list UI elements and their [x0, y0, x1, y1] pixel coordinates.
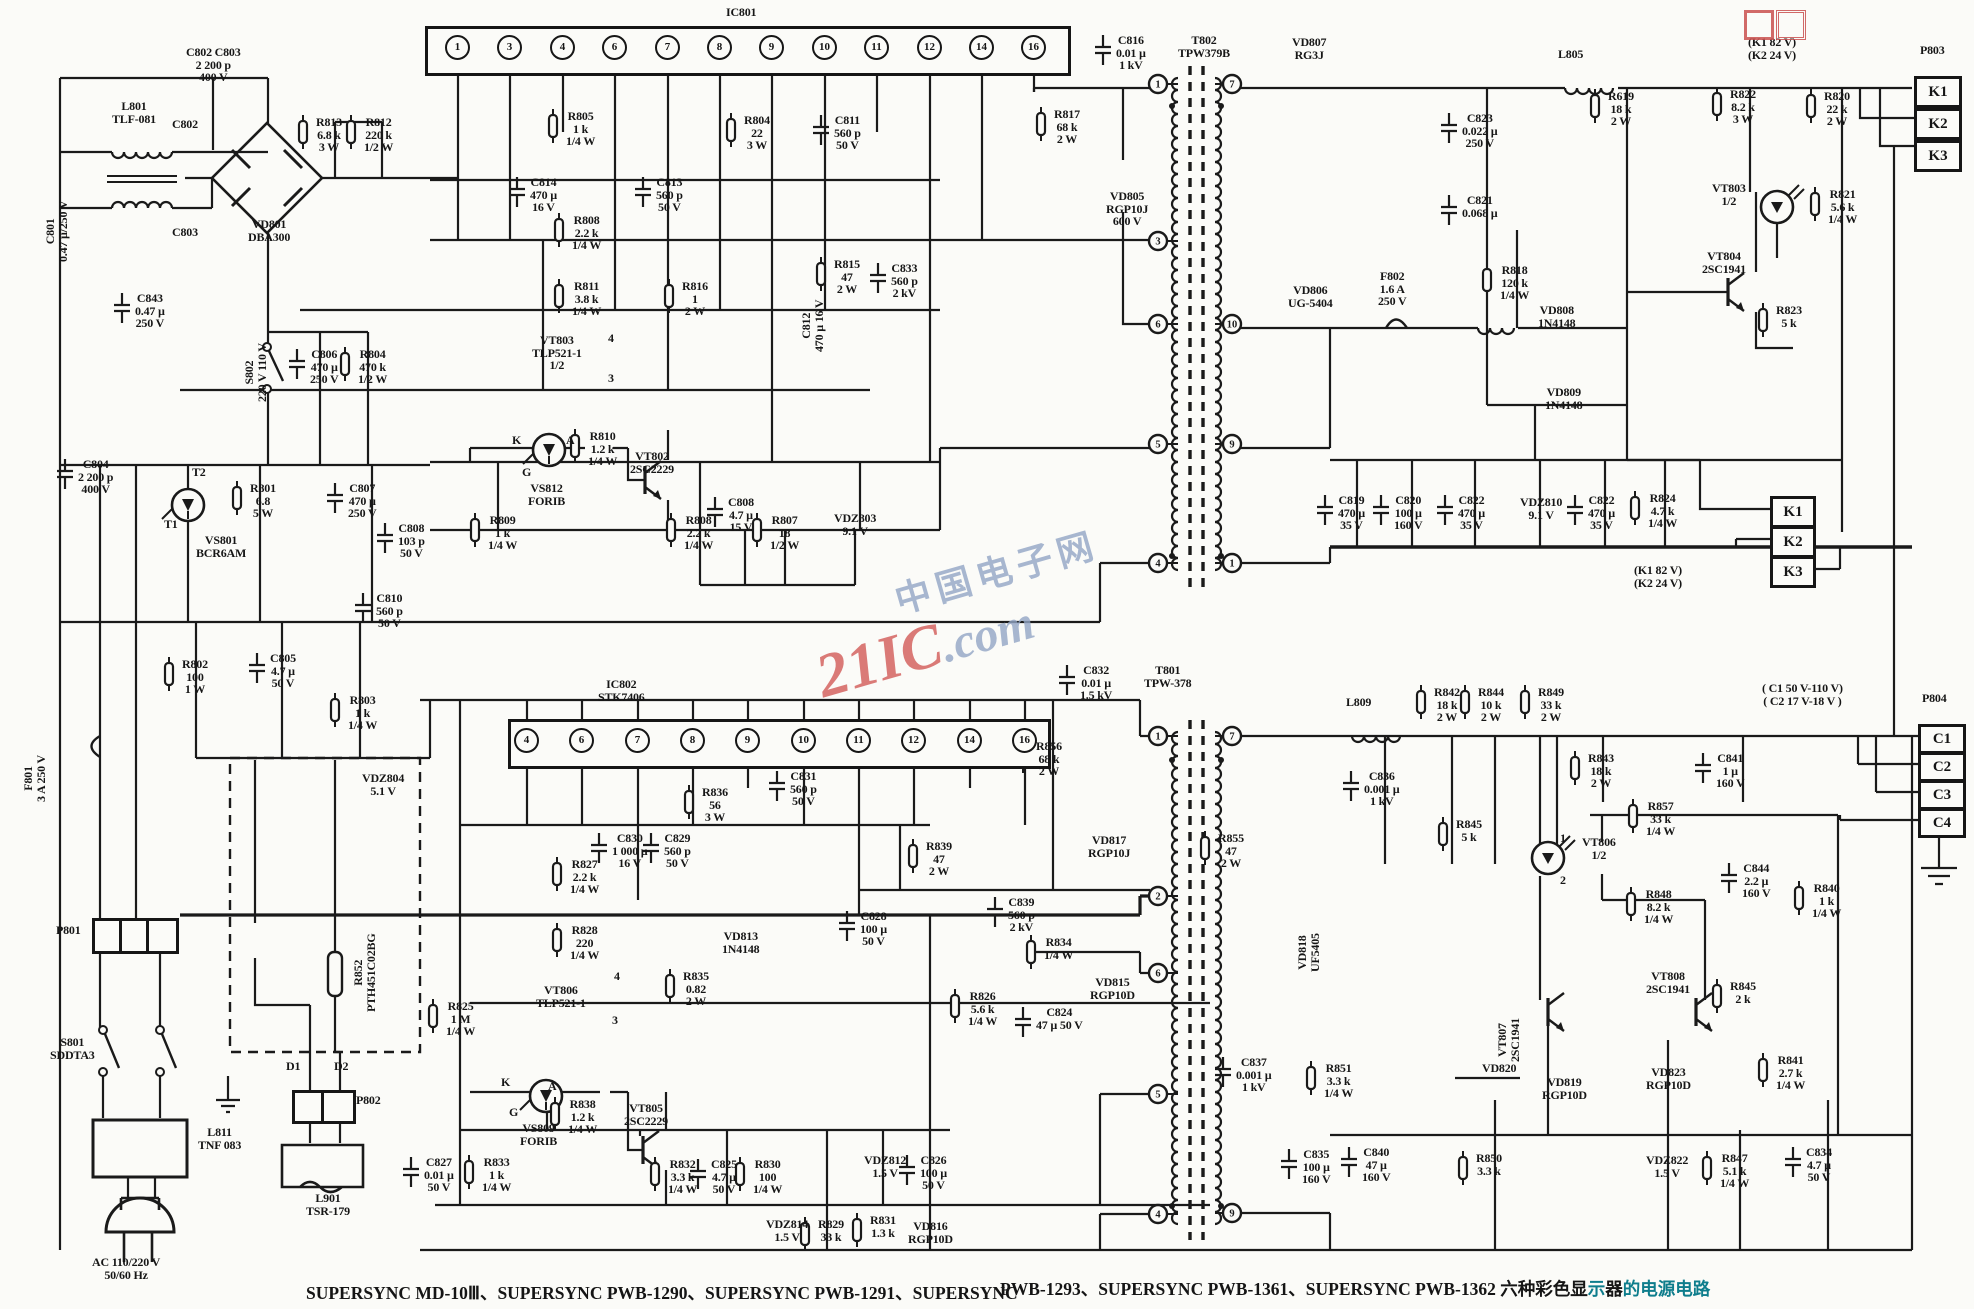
- component-label: C82447 µ 50 V: [1036, 1006, 1083, 1031]
- component-label: VS812FORIB: [528, 482, 565, 507]
- ic-pin-number: 11: [864, 35, 889, 60]
- component-label: R8215.6 k1/4 W: [1828, 188, 1857, 226]
- component-label: D1: [286, 1060, 300, 1073]
- component-label: C833560 p2 kV: [891, 262, 918, 300]
- transformer-pin-number: 1: [1155, 80, 1160, 91]
- component-label: R81768 k2 W: [1054, 108, 1080, 146]
- component-label: K: [501, 1076, 510, 1089]
- component-label: C8301 000 µ16 V: [612, 832, 648, 870]
- component-label: R8082.2 k1/4 W: [684, 514, 713, 552]
- component-label: A: [548, 1080, 556, 1093]
- transformer-pin-number: 7: [1229, 732, 1234, 743]
- component-label: R85733 k1/4 W: [1646, 800, 1675, 838]
- caption-cn-char: 器: [1605, 1279, 1623, 1299]
- component-label: 4: [614, 970, 620, 983]
- component-label: R8082.2 k1/4 W: [572, 214, 601, 252]
- ic-pin-number: 14: [969, 35, 994, 60]
- transformer-pin-number: 4: [1155, 559, 1161, 570]
- component-label: VT8052SC2229: [624, 1102, 668, 1127]
- component-label: L811TNF 083: [198, 1126, 241, 1151]
- component-label: C806470 µ250 V: [310, 348, 338, 386]
- transformer-pin-number: 4: [1155, 1210, 1161, 1221]
- connector-cell-c2: C2: [1918, 752, 1966, 782]
- component-label: R804223 W: [744, 114, 770, 152]
- component-label: R8051 k1/4 W: [566, 110, 595, 148]
- component-label: R8452 k: [1730, 980, 1756, 1005]
- ic-pin-number: 12: [917, 35, 942, 60]
- ic-pin-number: 10: [791, 728, 816, 753]
- component-label: VD817RGP10J: [1088, 834, 1130, 859]
- caption-cn-char: 示: [1588, 1279, 1606, 1299]
- component-label: C828100 µ50 V: [860, 910, 887, 948]
- component-label: C8370.001 µ1 kV: [1236, 1056, 1272, 1094]
- ic-pin-number: 14: [957, 728, 982, 753]
- component-label: R852PTH451C02BG: [352, 934, 377, 1012]
- component-label: (K1 82 V)(K2 24 V): [1634, 564, 1682, 589]
- component-label: ( C1 50 V-110 V)( C2 17 V-18 V ): [1762, 682, 1843, 707]
- component-label: 3: [612, 1014, 618, 1027]
- component-label: C8430.47 µ250 V: [135, 292, 165, 330]
- component-label: R8412.7 k1/4 W: [1776, 1054, 1805, 1092]
- component-label: VT8072SC1941: [1496, 1018, 1521, 1062]
- ic-pin-number: 9: [735, 728, 760, 753]
- component-label: C822470 µ35 V: [1588, 494, 1615, 532]
- component-label: 4: [608, 332, 614, 345]
- connector-cell-k1: K1: [1914, 76, 1962, 108]
- component-label: C8411 µ160 V: [1716, 752, 1744, 790]
- component-label: C802 C8032 200 p400 V: [186, 46, 241, 84]
- component-label: R8475.1 k1/4 W: [1720, 1152, 1749, 1190]
- component-label: 3: [608, 372, 614, 385]
- component-label: C8360.001 µ1 kV: [1364, 770, 1400, 808]
- component-label: R8021001 W: [182, 658, 208, 696]
- component-label: P802: [356, 1094, 381, 1107]
- transformer-pin-number: 6: [1155, 969, 1160, 980]
- ic-pin-number: 4: [550, 35, 575, 60]
- component-label: VD8081N4148: [1538, 304, 1575, 329]
- component-label: AC 110/220 V50/60 Hz: [92, 1256, 160, 1281]
- connector-cell-p802: [321, 1090, 356, 1124]
- component-label: C813560 p50 V: [656, 176, 683, 214]
- component-label: C819470 µ35 V: [1338, 494, 1365, 532]
- component-label: C8160.01 µ1 kV: [1116, 34, 1146, 72]
- component-label: VD807RG3J: [1292, 36, 1326, 61]
- component-label: VS801BCR6AM: [196, 534, 246, 559]
- caption-cn-char: 电: [1640, 1279, 1658, 1299]
- component-label: VDZ8141.5 V: [766, 1218, 808, 1243]
- component-label: VD8131N4148: [722, 930, 759, 955]
- connector-cell-k3: K3: [1914, 140, 1962, 172]
- component-label: R812220 k1/2 W: [364, 116, 393, 154]
- ic-pin-number: 10: [812, 35, 837, 60]
- component-label: L805: [1558, 48, 1583, 61]
- component-label: 1: [1560, 832, 1566, 845]
- component-label: R8381.2 k1/4 W: [568, 1098, 597, 1136]
- component-label: VD815RGP10D: [1090, 976, 1135, 1001]
- ic-pin-number: 12: [901, 728, 926, 753]
- component-label: P803: [1920, 44, 1945, 57]
- connector-cell-k1: K1: [1770, 496, 1816, 528]
- component-label: C8210.068 µ: [1462, 194, 1498, 219]
- component-label: VD8091N4148: [1545, 386, 1582, 411]
- component-label: C820100 µ160 V: [1394, 494, 1422, 532]
- ic-pin-number: 16: [1021, 35, 1046, 60]
- component-label: G: [522, 466, 531, 479]
- component-label: VD820: [1482, 1062, 1516, 1075]
- component-label: R8350.822 W: [683, 970, 709, 1008]
- component-label: R8401 k1/4 W: [1812, 882, 1841, 920]
- connector-cell-k2: K2: [1770, 526, 1816, 558]
- component-label: C8084.7 µ15 V: [728, 496, 754, 534]
- component-label: R839472 W: [926, 840, 952, 878]
- ic-pin-number: 4: [514, 728, 539, 753]
- component-label: VD816RGP10D: [908, 1220, 953, 1245]
- component-label: VDZ8045.1 V: [362, 772, 404, 797]
- component-label: C8010.47 µ/250 V: [44, 201, 69, 262]
- transformer-pin-number: 9: [1229, 1209, 1234, 1220]
- component-label: R8136.8 k3 W: [316, 116, 342, 154]
- connector-cell-c4: C4: [1918, 808, 1966, 838]
- component-label: VDZ8121.5 V: [864, 1154, 906, 1179]
- component-label: R82933 k: [818, 1218, 844, 1243]
- component-label: R61918 k2 W: [1608, 90, 1634, 128]
- component-label: R85668 k2 W: [1036, 740, 1062, 778]
- component-label: C808103 p50 V: [398, 522, 425, 560]
- component-label: R84410 k2 W: [1478, 686, 1504, 724]
- caption-cn-char: 路: [1693, 1279, 1711, 1299]
- component-label: VT803TLP521-11/2: [532, 334, 582, 372]
- component-label: C812470 µ 16 V: [800, 300, 825, 352]
- transformer-pin-number: 9: [1229, 440, 1234, 451]
- component-label: IC801: [726, 6, 756, 19]
- ic-pin-number: 7: [625, 728, 650, 753]
- component-label: T2: [192, 466, 206, 479]
- component-label: C835100 µ160 V: [1302, 1148, 1330, 1186]
- transformer-pin-number: 7: [1229, 80, 1234, 91]
- component-label: C8442.2 µ160 V: [1742, 862, 1770, 900]
- component-label: IC802STK7406: [598, 678, 645, 703]
- component-label: R8513.3 k1/4 W: [1324, 1062, 1353, 1100]
- caption-cn-char: 源: [1658, 1279, 1676, 1299]
- component-label: R84318 k2 W: [1588, 752, 1614, 790]
- transformer-pin-number: 1: [1155, 732, 1160, 743]
- transformer-pin-number: 2: [1155, 892, 1160, 903]
- transformer-pin-number: 6: [1155, 320, 1160, 331]
- component-label: VD819RGP10D: [1542, 1076, 1587, 1101]
- component-label: R8016.85 W: [250, 482, 276, 520]
- component-label: R81612 W: [682, 280, 708, 318]
- transformer-pin-number: 1: [1229, 559, 1234, 570]
- red-stamp-icon: [1776, 10, 1806, 40]
- component-label: F8013 A 250 V: [22, 755, 47, 802]
- component-label: T801TPW-378: [1144, 664, 1192, 689]
- component-label: R8031 k1/4 W: [348, 694, 377, 732]
- component-label: R8455 k: [1456, 818, 1482, 843]
- component-label: L901TSR-179: [306, 1192, 350, 1217]
- component-label: T802TPW379B: [1178, 34, 1230, 59]
- component-label: R855472 W: [1218, 832, 1244, 870]
- component-label: R8272.2 k1/4 W: [570, 858, 599, 896]
- component-label: T1: [164, 518, 178, 531]
- component-label: VDZ8221.5 V: [1646, 1154, 1688, 1179]
- component-label: 2: [1560, 874, 1566, 887]
- component-label: R8331 k1/4 W: [482, 1156, 511, 1194]
- component-label: R818120 k1/4 W: [1500, 264, 1529, 302]
- component-label: P801: [56, 924, 81, 937]
- component-label: R8251 M1/4 W: [446, 1000, 475, 1038]
- component-label: D2: [334, 1060, 348, 1073]
- component-label: C814470 µ16 V: [530, 176, 557, 214]
- component-label: R84218 k2 W: [1434, 686, 1460, 724]
- component-label: S801SDDTA3: [50, 1036, 95, 1061]
- component-label: R8488.2 k1/4 W: [1644, 888, 1673, 926]
- component-label: C8270.01 µ50 V: [424, 1156, 454, 1194]
- caption-right-cn: 六种彩色显示器的电源电路: [1500, 1279, 1710, 1299]
- component-label: C8230.022 µ250 V: [1462, 112, 1498, 150]
- component-label: VD818UF5405: [1296, 933, 1321, 972]
- component-label: R8341/4 W: [1044, 936, 1073, 961]
- component-label: A: [566, 434, 574, 447]
- component-label: R82022 k2 W: [1824, 90, 1850, 128]
- caption-right-en: PWB-1293、SUPERSYNC PWB-1361、SUPERSYNC PW…: [1000, 1279, 1500, 1299]
- caption-right: PWB-1293、SUPERSYNC PWB-1361、SUPERSYNC PW…: [1000, 1276, 1710, 1301]
- transformer-pin-number: 5: [1155, 440, 1160, 451]
- ic-pin-number: 8: [707, 35, 732, 60]
- caption-left: SUPERSYNC MD-10Ⅲ、SUPERSYNC PWB-1290、SUPE…: [306, 1280, 1018, 1305]
- component-label: R8265.6 k1/4 W: [968, 990, 997, 1028]
- component-label: VT8061/2: [1582, 836, 1616, 861]
- transformer-pin-number: 3: [1155, 237, 1160, 248]
- component-label: S802220 V 110 V: [243, 343, 268, 402]
- component-label: K: [512, 434, 521, 447]
- connector-cell-k2: K2: [1914, 108, 1962, 140]
- component-label: R804470 k1/2 W: [358, 348, 387, 386]
- component-label: R8101.2 k1/4 W: [588, 430, 617, 468]
- ic-pin-number: 8: [680, 728, 705, 753]
- component-label: G: [509, 1106, 518, 1119]
- component-label: R8235 k: [1776, 304, 1802, 329]
- component-label: VDZ8039.1 V: [834, 512, 876, 537]
- component-label: L809: [1346, 696, 1371, 709]
- transformer-pin-number: 5: [1155, 1090, 1160, 1101]
- component-label: C831560 p50 V: [790, 770, 817, 808]
- component-label: C807470 µ250 V: [348, 482, 376, 520]
- component-label: VT806TLP521-1: [536, 984, 586, 1009]
- component-label: R84933 k2 W: [1538, 686, 1564, 724]
- connector-cell-p801: [146, 918, 179, 954]
- component-label: C84047 µ160 V: [1362, 1146, 1390, 1184]
- component-label: C8320.01 µ1.5 kV: [1080, 664, 1112, 702]
- component-label: VD806UG-5404: [1288, 284, 1333, 309]
- ic-pin-number: 7: [655, 35, 680, 60]
- component-label: VT8082SC1941: [1646, 970, 1690, 995]
- component-label: R815472 W: [834, 258, 860, 296]
- ic-pin-number: 6: [569, 728, 594, 753]
- component-label: R8323.3 k1/4 W: [668, 1158, 697, 1196]
- connector-cell-c3: C3: [1918, 780, 1966, 810]
- caption-cn-char: 的: [1623, 1279, 1641, 1299]
- component-label: R807181/2 W: [770, 514, 799, 552]
- component-label: C829560 p50 V: [664, 832, 691, 870]
- component-label: C802: [172, 118, 198, 131]
- component-label: R8244.7 k1/4 W: [1648, 492, 1677, 530]
- component-label: R8301001/4 W: [753, 1158, 782, 1196]
- component-label: VD823RGP10D: [1646, 1066, 1691, 1091]
- ic-pin-number: 11: [846, 728, 871, 753]
- component-label: L801TLF-081: [112, 100, 156, 125]
- component-label: VD805RGP10J600 V: [1106, 190, 1148, 228]
- component-label: VS809FORIB: [520, 1122, 557, 1147]
- component-label: VT8031/2: [1712, 182, 1746, 207]
- ic-pin-number: 3: [497, 35, 522, 60]
- component-label: R8228.2 k3 W: [1730, 88, 1756, 126]
- component-label: C803: [172, 226, 198, 239]
- component-label: VD801DBA300: [248, 218, 290, 243]
- transformer-pin-number: 10: [1227, 320, 1238, 331]
- component-label: F8021.6 A250 V: [1378, 270, 1406, 308]
- red-stamp-icon: [1744, 10, 1774, 40]
- caption-cn-char: 六种彩色显: [1500, 1279, 1588, 1299]
- component-label: R8503.3 k: [1476, 1152, 1502, 1177]
- component-label: C839560 p2 kV: [1008, 896, 1035, 934]
- component-label: VT8042SC1941: [1702, 250, 1746, 275]
- component-label: C8254.7 µ50 V: [711, 1158, 737, 1196]
- ic-pin-number: 9: [759, 35, 784, 60]
- component-label: R8282201/4 W: [570, 924, 599, 962]
- component-label: C822470 µ35 V: [1458, 494, 1485, 532]
- schematic-canvas: 13654710911265479 中国电子网 21IC.com SUPERSY…: [0, 0, 1974, 1309]
- component-label: R8091 k1/4 W: [488, 514, 517, 552]
- component-label: R8113.8 k1/4 W: [572, 280, 601, 318]
- component-label: C8054.7 µ50 V: [270, 652, 296, 690]
- ic-pin-number: 6: [602, 35, 627, 60]
- caption-cn-char: 电: [1675, 1279, 1693, 1299]
- ic-pin-number: 16: [1012, 728, 1037, 753]
- connector-cell-c1: C1: [1918, 724, 1966, 754]
- component-label: VT8022SC2229: [630, 450, 674, 475]
- ic-pin-number: 1: [445, 35, 470, 60]
- component-label: VDZ8109.1 V: [1520, 496, 1562, 521]
- component-label: C8042 200 p400 V: [78, 458, 113, 496]
- component-label: C810560 p50 V: [376, 592, 403, 630]
- component-label: P804: [1922, 692, 1947, 705]
- component-label: C826100 µ50 V: [920, 1154, 947, 1192]
- component-label: C8344.7 µ50 V: [1806, 1146, 1832, 1184]
- component-label: R8311.3 k: [870, 1214, 896, 1239]
- component-label: R836563 W: [702, 786, 728, 824]
- component-label: C811560 p50 V: [834, 114, 861, 152]
- connector-cell-k3: K3: [1770, 556, 1816, 588]
